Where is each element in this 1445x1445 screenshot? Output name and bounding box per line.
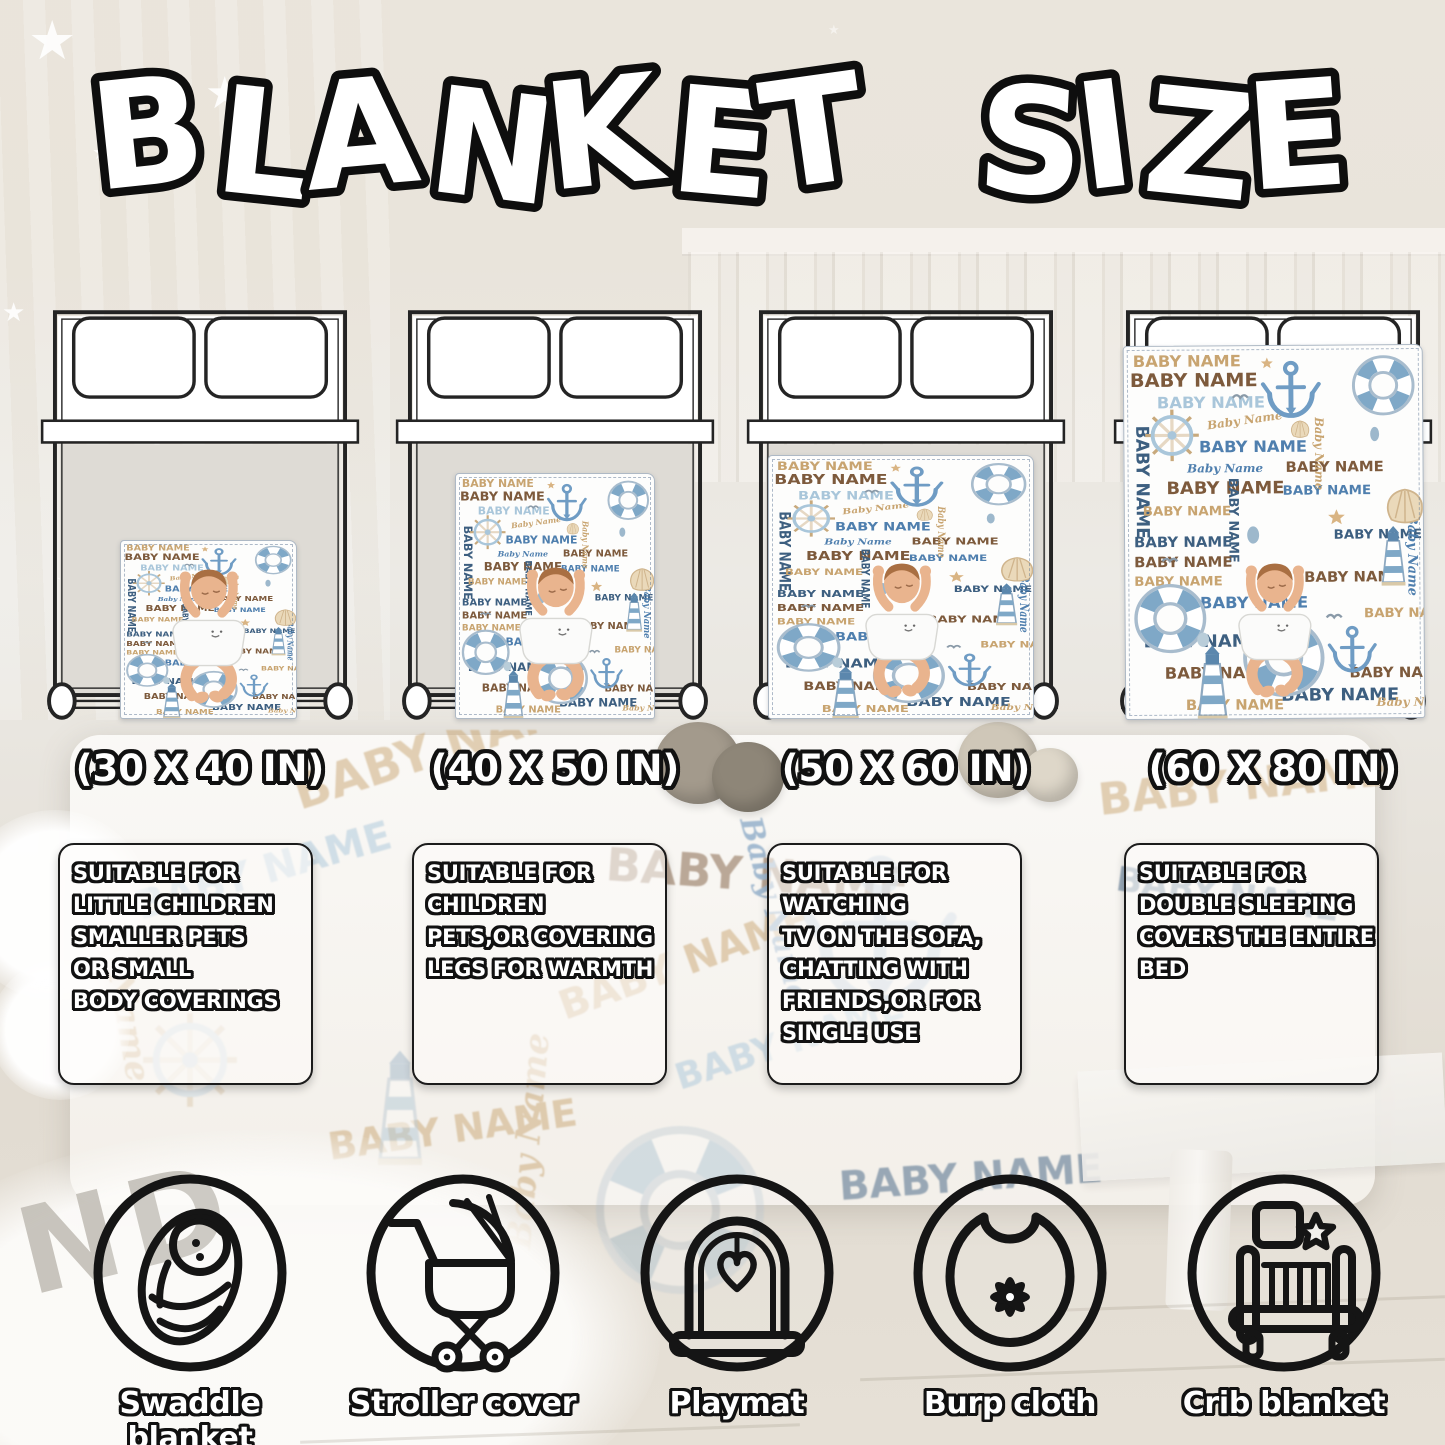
suitable-box-line: COVERS THE ENTIRE (1139, 922, 1364, 954)
page-title: BLANKET SIZE (0, 28, 1445, 243)
suitable-box-header: SUITABLE FOR (427, 858, 652, 890)
use-label: Crib blanket (1148, 1386, 1420, 1421)
suitable-box-0: SUITABLE FORLITTLE CHILDRENSMALLER PETSO… (58, 843, 313, 1085)
size-label: (30 X 40 IN) (30, 747, 370, 790)
burp-cloth-icon (910, 1172, 1110, 1374)
suitable-box-line: OR SMALL (73, 954, 298, 986)
blanket-size-infographic: ★ ★ ★ ★ ★ ★ ★ ★ ★ BABY NAME BABY NAME BA… (0, 0, 1445, 1445)
suitable-box-line: CHATTING WITH (782, 954, 1007, 986)
suitable-box-line: PETS,OR COVERING (427, 922, 652, 954)
suitable-box-line: LITTLE CHILDREN (73, 890, 298, 922)
bed-size-panel-1: (40 X 50 IN) (407, 310, 703, 790)
size-label: (60 X 80 IN) (1103, 747, 1443, 790)
size-label: (50 X 60 IN) (736, 747, 1076, 790)
suitable-box-header: SUITABLE FOR (1139, 858, 1364, 890)
use-label: Swaddle blanket (54, 1386, 326, 1445)
use-label: Playmat (601, 1386, 873, 1421)
crib-icon (1184, 1172, 1384, 1374)
suitable-box-line: TV ON THE SOFA, (782, 922, 1007, 954)
suitable-box-line: SMALLER PETS (73, 922, 298, 954)
bed-size-panel-0: (30 X 40 IN) (52, 310, 348, 790)
bed-size-panel-3: (60 X 80 IN) (1125, 310, 1421, 790)
suitable-box-line: SINGLE USE (782, 1018, 1007, 1050)
baby-photo (853, 556, 947, 701)
stroller-icon (363, 1172, 563, 1374)
baby-photo (507, 560, 601, 705)
use-label: Burp cloth (874, 1386, 1146, 1421)
playmat-icon (637, 1172, 837, 1374)
star-decoration: ★ (2, 300, 25, 326)
size-label: (40 X 50 IN) (385, 747, 725, 790)
suitable-box-line: WATCHING (782, 890, 1007, 922)
suitable-box-header: SUITABLE FOR (73, 858, 298, 890)
suitable-box-line: DOUBLE SLEEPING (1139, 890, 1364, 922)
suitable-box-line: BED (1139, 954, 1364, 986)
swaddle-blanket-icon (90, 1172, 290, 1374)
baby-photo (160, 562, 254, 707)
suitable-box-2: SUITABLE FORWATCHINGTV ON THE SOFA,CHATT… (767, 843, 1022, 1085)
suitable-box-header: SUITABLE FOR (782, 858, 1007, 890)
suitable-box-line: CHILDREN (427, 890, 652, 922)
suitable-box-line: FRIENDS,OR FOR (782, 986, 1007, 1018)
bed-size-panel-2: (50 X 60 IN) (758, 310, 1054, 790)
suitable-box-1: SUITABLE FORCHILDRENPETS,OR COVERINGLEGS… (412, 843, 667, 1085)
baby-photo (1226, 556, 1320, 701)
suitable-box-line: LEGS FOR WARMTH (427, 954, 652, 986)
page-title-text: BLANKET SIZE (83, 40, 1355, 240)
use-label: Stroller cover (327, 1386, 599, 1421)
suitable-box-3: SUITABLE FORDOUBLE SLEEPINGCOVERS THE EN… (1124, 843, 1379, 1085)
suitable-box-line: BODY COVERINGS (73, 986, 298, 1018)
